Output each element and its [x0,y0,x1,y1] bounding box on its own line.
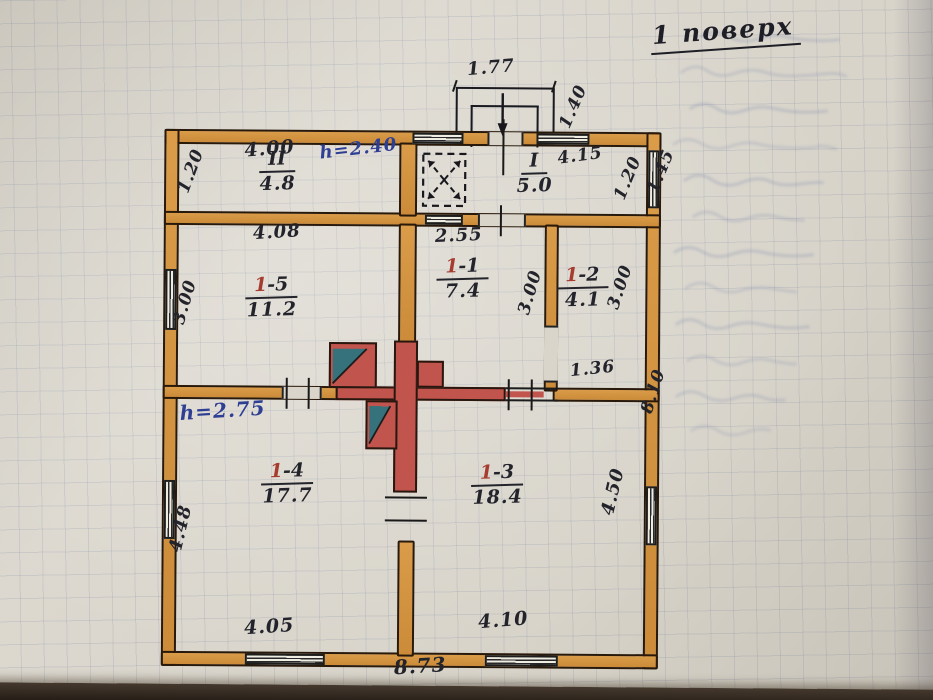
dim-porch-width: 1.77 [466,55,515,80]
door-i1-to-i2 [544,326,558,383]
room-label-veranda-i: I 5.0 [516,150,553,196]
room-label-i3: 1-3 18.4 [470,461,524,507]
stove-flue-line [506,391,544,397]
window-hall-internal [425,215,463,225]
room-number: I [520,150,548,174]
stove-square-small [417,361,444,388]
room-label-i1: 1-1 7.4 [436,255,490,301]
door-tick [385,519,427,522]
dim-bottom-left-window: 4.05 [243,614,295,639]
room-number: 1-3 [470,461,523,486]
door-tick [508,379,511,410]
window-right-low [646,486,657,545]
porch-door-tick [502,119,505,175]
dim-room-i1-depth: 3.00 [514,268,546,317]
room-number: 1-5 [245,274,298,299]
dim-room-i2-depth: 3.00 [603,262,636,311]
door-tick [500,205,503,236]
door-tick [286,378,289,409]
room-area: 18.4 [471,485,524,508]
stove-band-horizontal [336,386,506,401]
window-top-left [412,133,463,144]
photo-shadow-right [893,0,933,700]
dim-room-i5-width: 4.08 [252,220,301,244]
dim-right-window-low: 4.50 [597,466,629,517]
dim-passage-width: 1.36 [569,357,616,381]
window-bottom-left [245,653,325,665]
window-bottom-right [485,655,558,667]
room-number: 1-2 [556,264,609,289]
room-number: 1-1 [436,255,489,280]
ink-bleed-through [650,26,933,464]
stove-square-upper [329,342,377,388]
dim-porch-depth: 1.40 [555,82,591,132]
room-area: 4.1 [556,288,609,311]
dim-bottom-right-window: 4.10 [477,607,529,633]
room-number: 1-4 [260,460,313,485]
dim-room-i-width: 4.15 [556,143,604,169]
door-tick [308,378,311,409]
window-top-right [536,133,589,144]
wall-veranda-divider [399,143,418,217]
cellar-hatch-symbol [420,151,468,209]
dim-hall-width: 2.55 [434,224,483,247]
wall-i5-i1 [398,224,417,346]
room-label-i2: 1-2 4.1 [556,264,610,310]
dim-room-ii-width: 4.00 [244,136,296,162]
stove-square-lower [365,400,397,449]
door-tick [531,379,534,410]
wall-i4-i3 [397,541,415,657]
room-area: 4.8 [259,172,296,195]
room-label-i4: 1-4 17.7 [260,460,314,506]
room-area: 17.7 [261,484,314,507]
dim-house-width: 8.73 [393,652,447,679]
room-area: 11.2 [245,297,298,320]
floor-plan-photo: 1 поверх [0,0,933,700]
room-area: 7.4 [437,279,490,302]
note-height-main: h=2.75 [179,396,266,425]
room-label-i5: 1-5 11.2 [245,274,299,320]
door-tick [385,496,427,499]
room-area: 5.0 [516,173,553,196]
dim-room-i-depth: 1.20 [610,153,646,203]
